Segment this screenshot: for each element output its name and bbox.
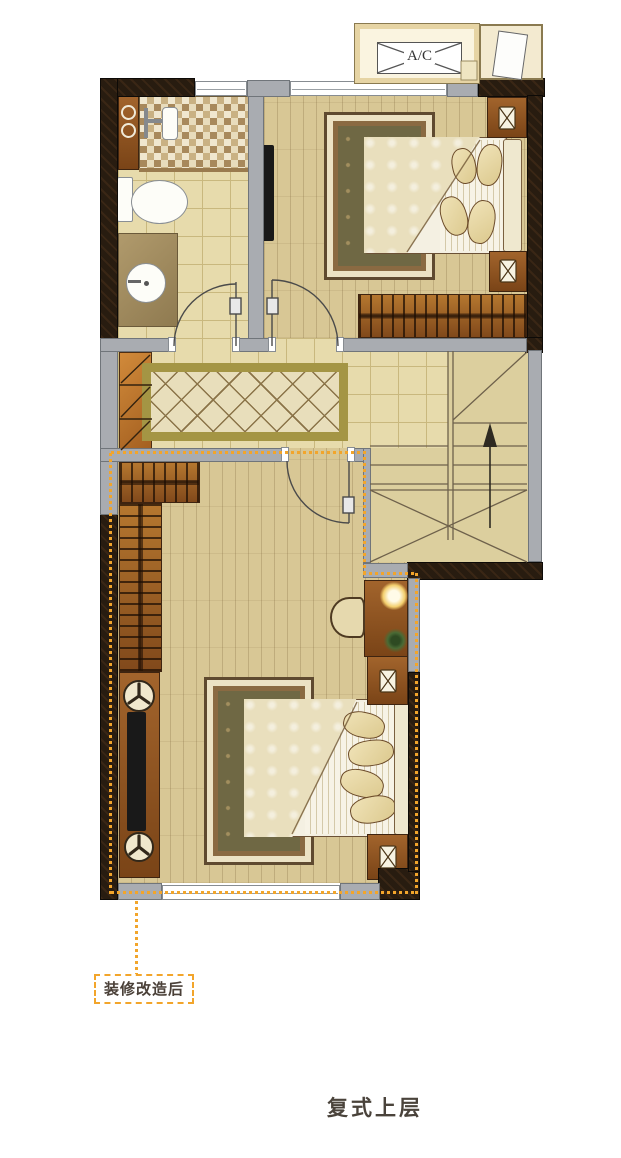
stairs-lower-flight [370,448,448,562]
door-jamb [336,337,344,352]
wall-segment [408,672,420,872]
ac-label: A/C [377,48,462,65]
renovation-boundary-top [111,451,364,454]
nightstand [487,97,527,138]
wall-segment [363,563,408,578]
tv-lower [127,712,146,831]
renovation-boundary-right-lower [415,572,418,894]
wall-segment [100,338,172,352]
corridor-rug [142,363,348,441]
shower-valve-icon [144,108,148,138]
wall-segment [407,562,543,580]
renovation-boundary-left [109,451,112,894]
wardrobe-upper [358,294,527,338]
renovation-boundary-bottom [111,891,417,894]
wall-segment [378,868,420,900]
wall-segment [528,350,542,562]
renovation-leader-line [135,900,138,976]
wall-segment [340,338,527,352]
renovation-boundary-right-upper [363,451,366,574]
terrace-door-leaf [492,30,528,80]
wardrobe-lower-left [119,503,162,672]
wall-segment [248,96,264,339]
bed-upper-headboard [503,139,522,252]
wall-segment [408,578,420,672]
door-jamb [281,447,289,462]
wall-pier [247,80,290,97]
wardrobe-lower-top [119,462,200,503]
sink-faucet-icon [128,280,141,283]
nightstand [367,656,408,705]
wall-pier [236,338,272,352]
wall-segment [100,78,118,350]
plant-icon [383,628,408,653]
renovation-label: 装修改造后 [94,974,194,1004]
shower-curb [139,168,249,172]
toilet-bowl [131,180,188,224]
sink-drain-icon [144,281,149,286]
floor-plan: A/C 装修改造后 复式上层 [0,0,621,1158]
door-jamb [347,447,355,462]
window [195,81,247,96]
wall-segment [527,95,543,351]
door-jamb [268,337,276,352]
knob-icon [121,123,136,138]
window [290,81,447,96]
plan-caption: 复式上层 [284,1092,466,1122]
door-jamb [232,337,240,352]
shower-panel-icon [162,107,178,140]
door-jamb [168,337,176,352]
knob-icon [121,105,136,120]
renovation-boundary-jog [363,572,417,575]
stairs-upper-flight [448,350,528,562]
desk-lamp-icon [380,582,408,610]
shower-arm-icon [147,119,163,123]
desk-chair [330,597,365,638]
shower-area [139,96,249,170]
nightstand [489,251,527,292]
